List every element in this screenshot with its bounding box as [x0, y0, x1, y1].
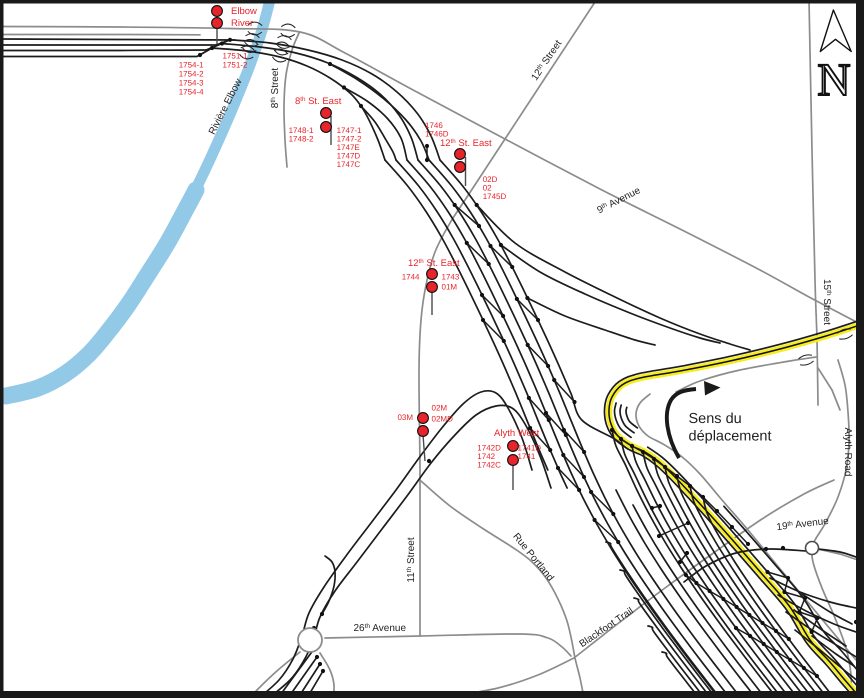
svg-text:1743: 1743: [442, 273, 460, 282]
svg-text:1751-1: 1751-1: [223, 52, 248, 61]
svg-text:02MD: 02MD: [432, 415, 454, 424]
svg-text:1754-1: 1754-1: [179, 61, 204, 70]
svg-text:Alyth West: Alyth West: [494, 428, 540, 439]
svg-text:12th St. East: 12th St. East: [440, 138, 492, 150]
svg-text:12th St. East: 12th St. East: [408, 258, 460, 270]
svg-text:1742C: 1742C: [477, 461, 501, 470]
svg-text:1751-2: 1751-2: [223, 61, 248, 70]
svg-text:Sens du: Sens du: [689, 411, 742, 427]
svg-text:N: N: [817, 54, 850, 105]
svg-text:11th Street: 11th Street: [406, 537, 418, 582]
svg-text:1741: 1741: [518, 452, 536, 461]
svg-text:déplacement: déplacement: [689, 429, 772, 445]
svg-text:26th Avenue: 26th Avenue: [354, 623, 407, 635]
svg-text:1747C: 1747C: [337, 160, 361, 169]
svg-text:Elbow: Elbow: [231, 6, 257, 17]
svg-text:1754-2: 1754-2: [179, 70, 204, 79]
svg-text:Alyth Road: Alyth Road: [842, 428, 853, 477]
svg-text:15th Street: 15th Street: [821, 279, 833, 325]
svg-text:1754-3: 1754-3: [179, 79, 204, 88]
svg-text:1748-2: 1748-2: [289, 135, 314, 144]
svg-text:03M: 03M: [397, 413, 413, 422]
svg-text:1754-4: 1754-4: [179, 88, 204, 97]
svg-text:01M: 01M: [442, 283, 458, 292]
svg-text:02M: 02M: [432, 404, 448, 413]
svg-text:1745D: 1745D: [483, 192, 507, 201]
svg-text:River: River: [231, 18, 253, 29]
svg-text:1744: 1744: [402, 273, 420, 282]
